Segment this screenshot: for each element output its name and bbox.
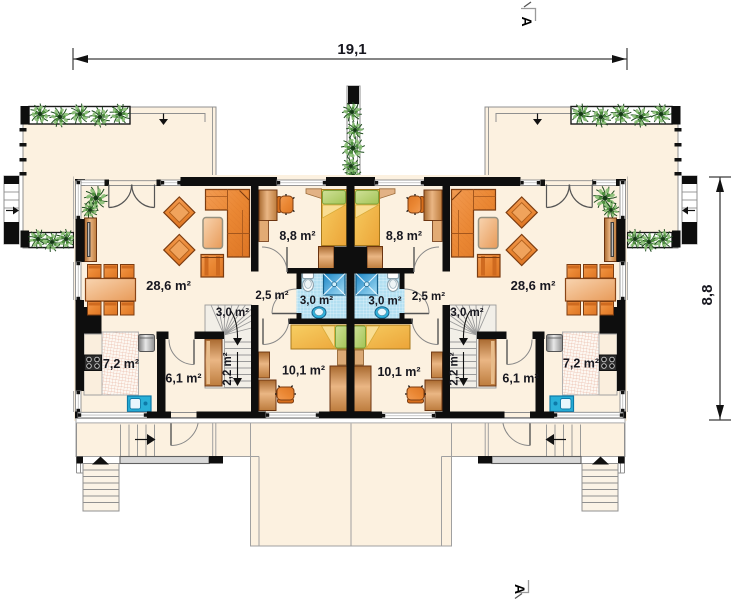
- svg-text:28,6 m²: 28,6 m²: [146, 278, 191, 293]
- svg-text:8,8 m²: 8,8 m²: [386, 229, 422, 243]
- svg-text:28,6 m²: 28,6 m²: [511, 278, 556, 293]
- svg-text:3,0 m²: 3,0 m²: [216, 307, 249, 319]
- svg-text:6,1 m²: 6,1 m²: [165, 372, 201, 386]
- svg-text:8,8: 8,8: [699, 285, 716, 306]
- svg-text:10,1 m²: 10,1 m²: [282, 364, 325, 378]
- svg-text:3,0 m²: 3,0 m²: [450, 307, 483, 319]
- svg-text:3,0 m²: 3,0 m²: [300, 295, 333, 307]
- svg-text:A: A: [512, 584, 528, 594]
- svg-text:7,2 m²: 7,2 m²: [563, 357, 599, 371]
- svg-text:A: A: [519, 16, 535, 26]
- svg-text:2,2 m²: 2,2 m²: [449, 352, 461, 385]
- svg-text:3,0 m²: 3,0 m²: [368, 296, 401, 308]
- svg-text:6,1 m²: 6,1 m²: [502, 372, 538, 386]
- svg-text:10,1 m²: 10,1 m²: [377, 365, 420, 379]
- svg-text:19,1: 19,1: [337, 41, 366, 58]
- svg-text:2,5 m²: 2,5 m²: [255, 290, 288, 302]
- svg-text:8,8 m²: 8,8 m²: [279, 229, 315, 243]
- svg-text:2,2 m²: 2,2 m²: [222, 352, 234, 385]
- svg-text:7,2 m²: 7,2 m²: [103, 357, 139, 371]
- svg-text:2,5 m²: 2,5 m²: [412, 291, 445, 303]
